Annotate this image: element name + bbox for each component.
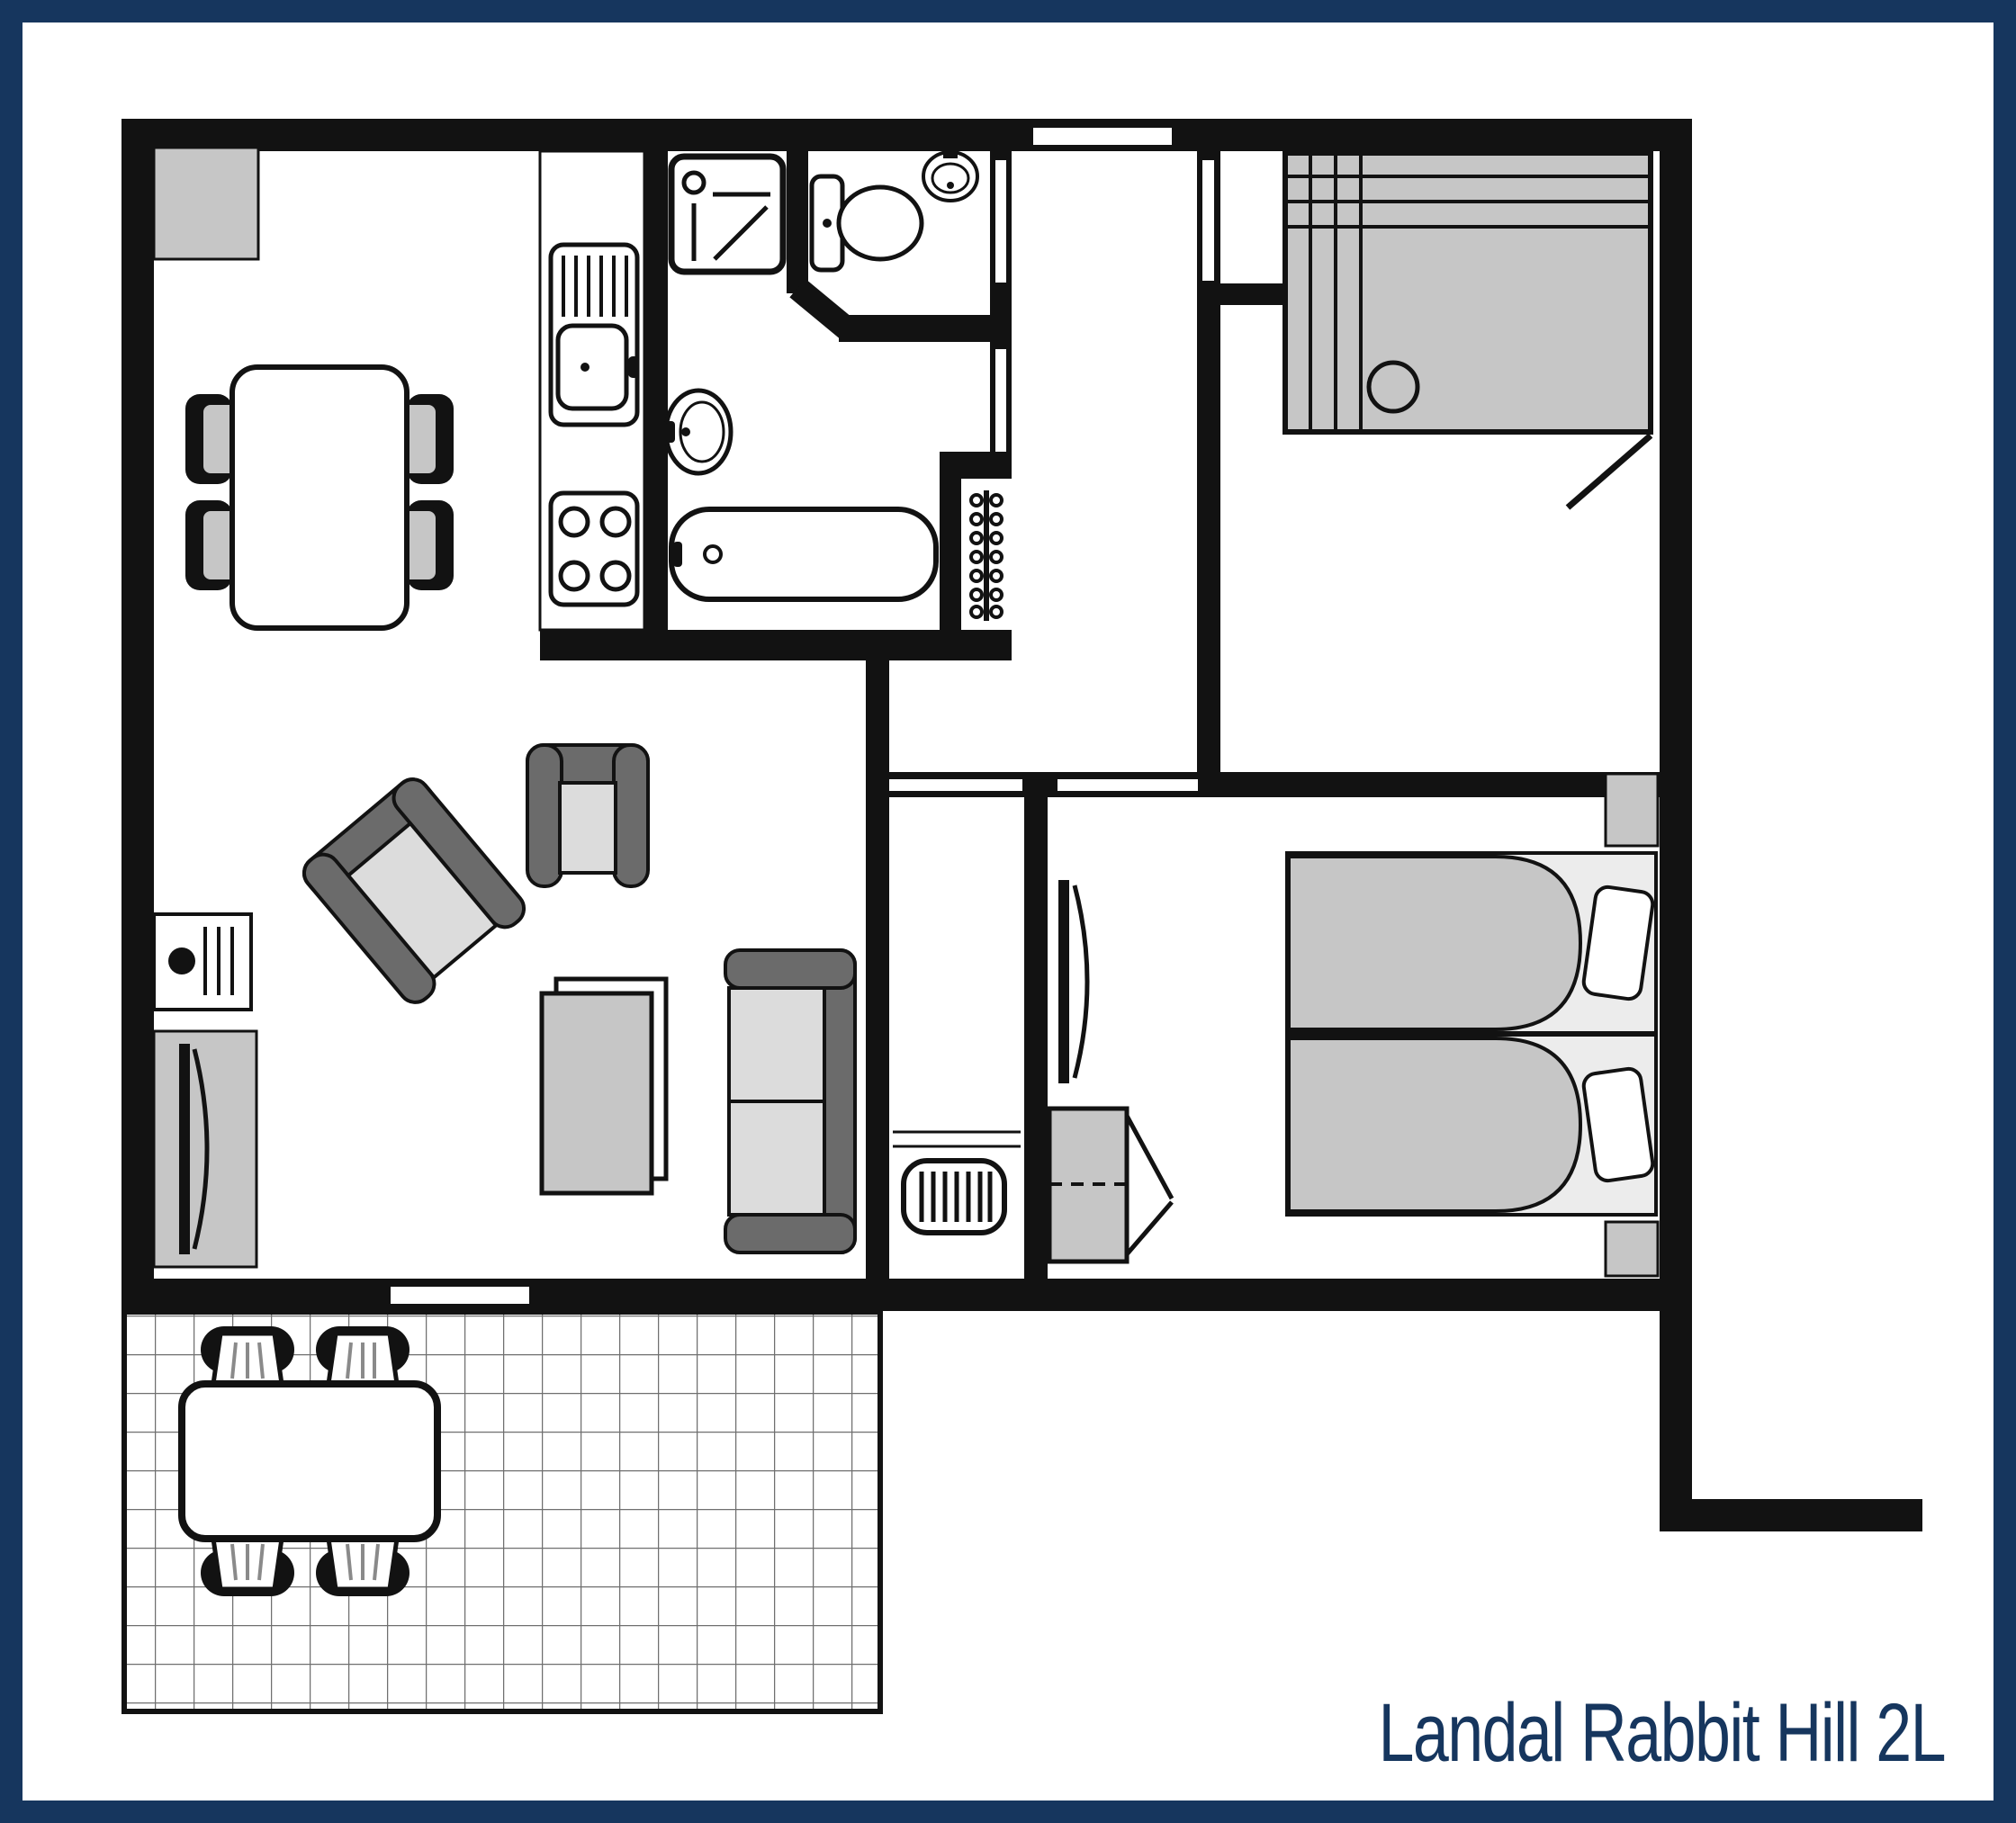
sauna-room-door-opening <box>1202 160 1214 281</box>
bed <box>1287 853 1656 1033</box>
bed <box>1287 1035 1656 1215</box>
duvet <box>1289 857 1580 1029</box>
nightstand <box>1606 774 1658 846</box>
dining-table <box>232 367 407 628</box>
bedroom-tv <box>1058 880 1087 1083</box>
garden-wall-vertical <box>1660 1311 1692 1531</box>
wall-bathroom-south <box>540 630 1012 660</box>
sink-tap <box>628 356 639 378</box>
coffee-table <box>542 979 666 1193</box>
shower <box>671 157 783 272</box>
tv-cabinet <box>154 1031 256 1267</box>
closet-heater <box>904 1161 1004 1233</box>
terrace-chair <box>201 1326 294 1384</box>
pillow <box>1582 885 1654 1001</box>
wall-niche-side <box>940 479 961 630</box>
wall-sauna-niche <box>1220 283 1285 305</box>
tv-icon <box>1058 880 1069 1083</box>
wall-shower-wc <box>787 151 808 293</box>
plan-title: Landal Rabbit Hill 2L <box>1379 1686 1945 1781</box>
sauna-door-swing <box>1568 436 1651 507</box>
armchair <box>298 773 531 1009</box>
toilet <box>812 176 922 270</box>
wc-basin-tap <box>943 151 958 158</box>
tv-icon <box>179 1044 190 1254</box>
terrace <box>124 1312 880 1711</box>
front-door-opening <box>1033 128 1172 145</box>
radiator <box>971 490 1002 621</box>
terrace-chair <box>316 1326 409 1384</box>
sauna-room <box>1285 153 1651 507</box>
terrace-table <box>182 1384 437 1539</box>
garden-wall-horizontal <box>1692 1499 1922 1531</box>
armchair <box>527 745 648 886</box>
sauna-stove <box>1369 363 1417 411</box>
terrace-chair <box>316 1539 409 1596</box>
sauna-cabin <box>1285 153 1651 432</box>
corner-cabinet <box>154 148 258 259</box>
wc-door-opening <box>995 160 1006 283</box>
pillow <box>1582 1067 1654 1182</box>
stove <box>551 493 637 605</box>
nightstand <box>1606 1222 1658 1276</box>
kitchen-sink <box>551 245 639 425</box>
wall-living-east <box>866 630 889 1311</box>
closet-door-opening <box>889 779 1022 791</box>
sofa <box>725 950 855 1253</box>
wc-basin <box>923 151 977 201</box>
fireplace <box>154 914 251 1010</box>
kitchen <box>540 151 644 630</box>
utility-closet <box>893 1132 1021 1233</box>
wall-kitchen <box>644 151 668 660</box>
wall-bottom <box>121 1279 1692 1311</box>
washbasin <box>666 391 731 473</box>
living-room <box>154 148 855 1267</box>
bath-tap <box>673 542 682 567</box>
wall-bedroom-west <box>1024 797 1048 1279</box>
basin-tap <box>666 421 675 443</box>
wall-right <box>1660 119 1692 1311</box>
toilet-room <box>812 151 977 270</box>
wall-wc-south <box>839 315 1012 342</box>
wall-top <box>121 119 1692 151</box>
wall-niche-top <box>940 452 1012 479</box>
terrace-chair <box>201 1539 294 1596</box>
wardrobe <box>1049 1109 1172 1262</box>
terrace-door-opening <box>391 1287 529 1304</box>
wall-left <box>121 119 154 1311</box>
closet-shelf <box>893 1132 1021 1146</box>
bathroom-door-opening <box>995 349 1006 452</box>
floor-plan-page: Landal Rabbit Hill 2L <box>0 0 2016 1823</box>
duvet <box>1289 1038 1580 1211</box>
bedroom-door-opening <box>1057 779 1198 791</box>
bedroom <box>1049 774 1658 1276</box>
floor-plan-drawing <box>22 22 1993 1801</box>
bathtub <box>671 509 936 599</box>
